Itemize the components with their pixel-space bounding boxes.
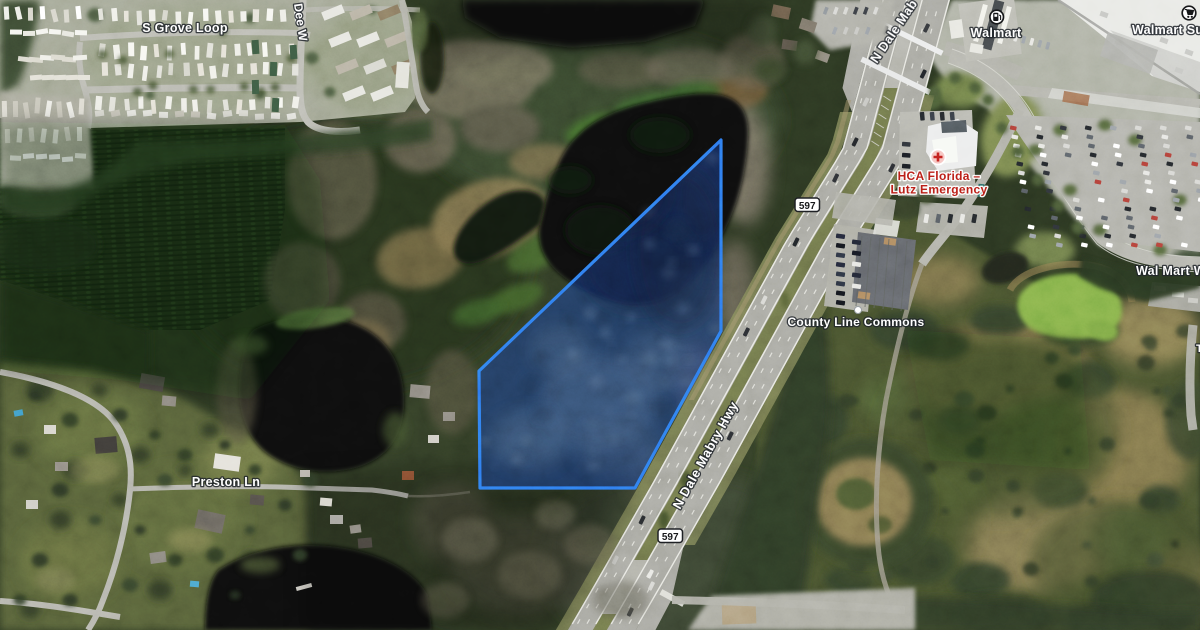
svg-text:HCA Florida –: HCA Florida – bbox=[898, 169, 981, 183]
svg-text:Preston Ln: Preston Ln bbox=[192, 475, 260, 489]
svg-text:597: 597 bbox=[662, 532, 679, 543]
svg-text:Walmart Sup: Walmart Sup bbox=[1132, 23, 1200, 37]
svg-text:Lutz Emergency: Lutz Emergency bbox=[891, 183, 988, 197]
svg-text:Wal Mart W: Wal Mart W bbox=[1136, 264, 1200, 278]
svg-text:T: T bbox=[1196, 343, 1200, 355]
svg-text:County Line Commons: County Line Commons bbox=[787, 315, 924, 329]
svg-text:S Grove Loop: S Grove Loop bbox=[142, 21, 228, 35]
svg-text:Walmart: Walmart bbox=[971, 26, 1022, 40]
svg-text:597: 597 bbox=[799, 201, 816, 212]
